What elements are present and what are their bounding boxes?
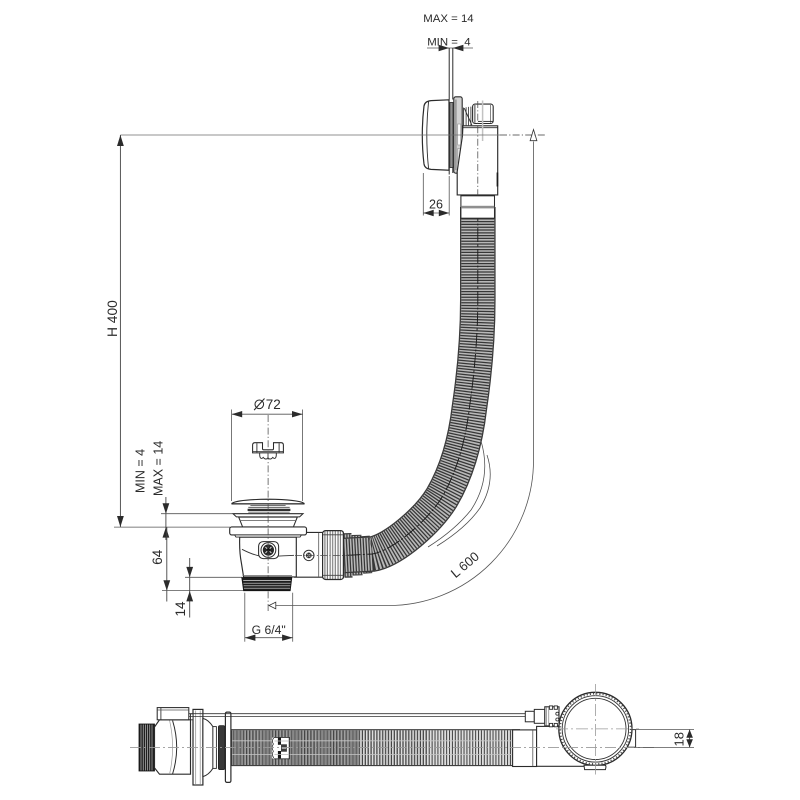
svg-text:MIN = 4: MIN = 4 [134,449,148,493]
svg-text:MAX = 14: MAX = 14 [423,13,473,25]
svg-text:MAX = 14: MAX = 14 [151,441,165,496]
svg-text:H 400: H 400 [105,300,120,337]
svg-text:G 6/4": G 6/4" [252,623,286,637]
svg-text:18: 18 [672,732,687,746]
svg-text:14: 14 [173,601,188,617]
svg-text:26: 26 [429,198,443,212]
svg-text:MIN = 4: MIN = 4 [427,37,470,49]
svg-text:72: 72 [266,397,281,412]
svg-text:64: 64 [150,549,165,565]
